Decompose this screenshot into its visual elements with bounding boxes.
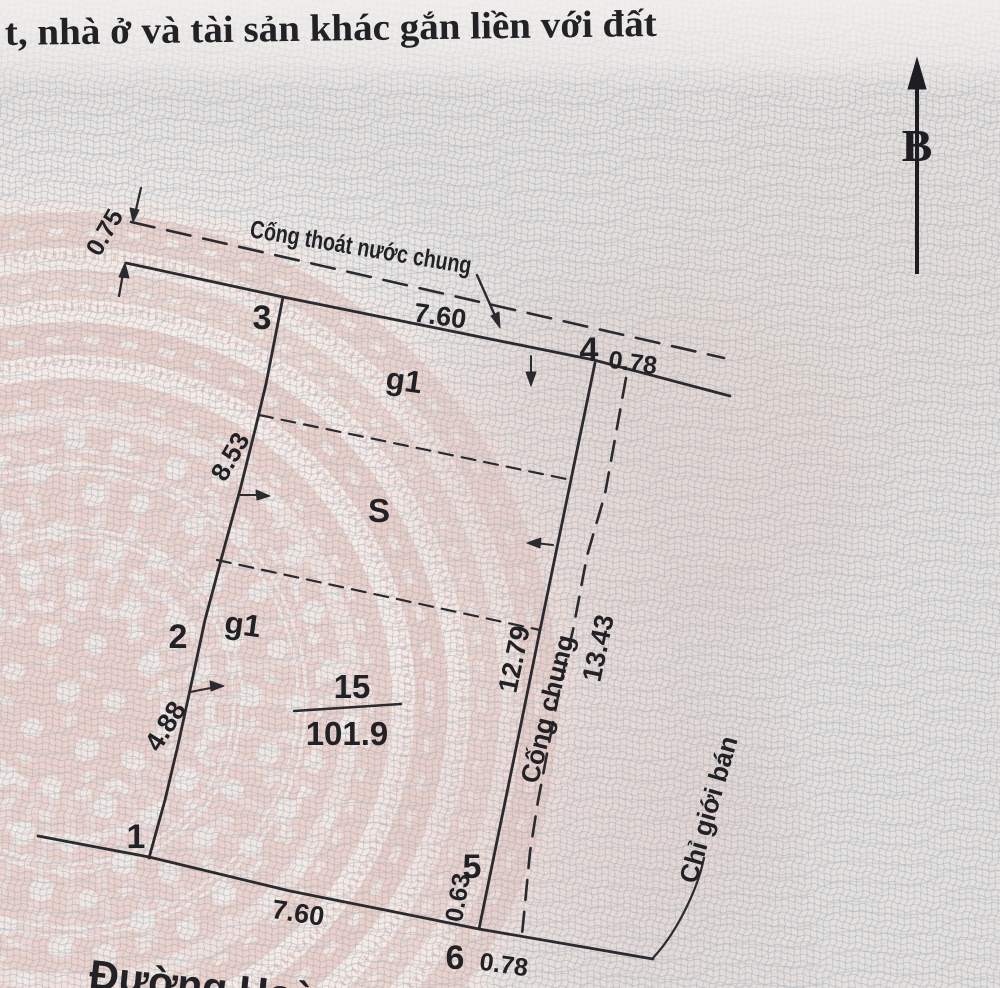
svg-text:S: S	[368, 492, 390, 529]
svg-text:101.9: 101.9	[306, 715, 389, 752]
svg-text:3: 3	[253, 299, 272, 337]
svg-text:15: 15	[334, 668, 371, 705]
svg-text:g1: g1	[384, 361, 425, 401]
svg-text:g1: g1	[223, 605, 264, 645]
svg-text:B: B	[902, 120, 933, 171]
svg-text:1: 1	[127, 818, 146, 856]
svg-text:6: 6	[446, 939, 465, 977]
svg-text:4: 4	[580, 331, 599, 369]
svg-text:2: 2	[169, 618, 188, 656]
